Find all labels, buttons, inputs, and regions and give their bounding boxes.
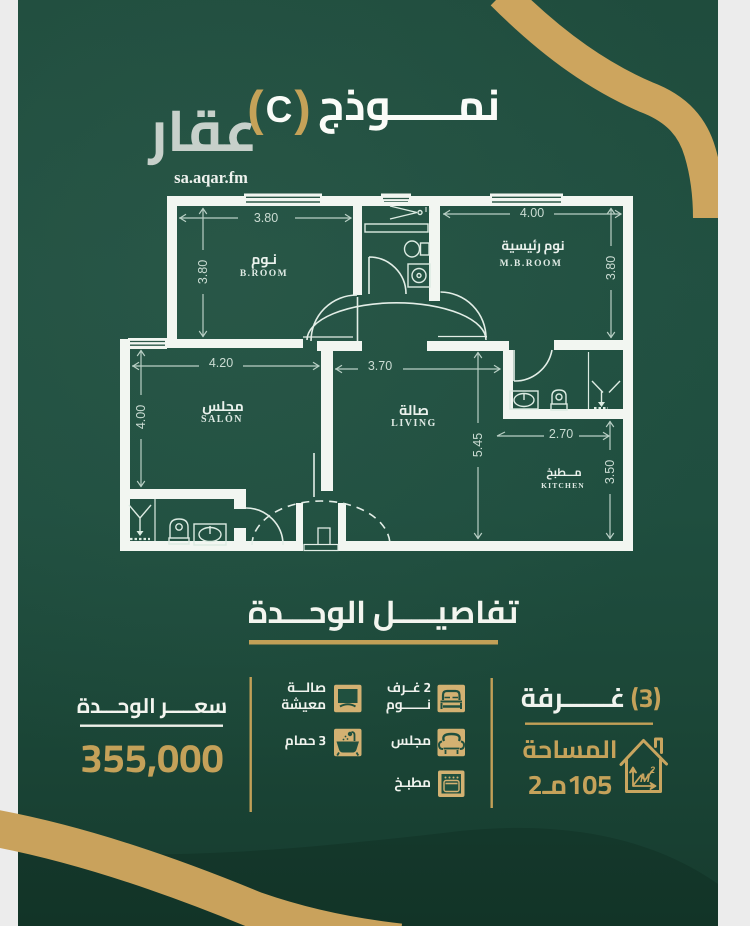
svg-text:2: 2	[649, 765, 655, 775]
